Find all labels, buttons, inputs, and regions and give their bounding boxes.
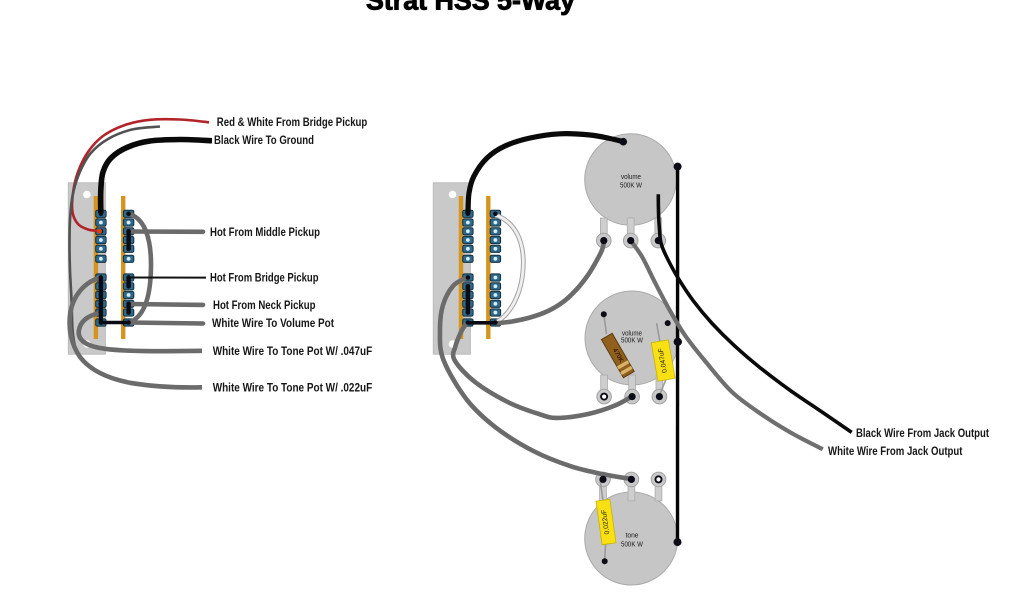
svg-text:Strat HSS 5-Way: Strat HSS 5-Way [366,0,575,16]
svg-text:Hot From Bridge Pickup: Hot From Bridge Pickup [210,271,319,284]
svg-text:Hot From Neck Pickup: Hot From Neck Pickup [213,299,316,312]
svg-text:White Wire To Tone Pot W/ .022: White Wire To Tone Pot W/ .022uF [213,382,373,395]
svg-text:Black Wire From Jack Output: Black Wire From Jack Output [856,427,989,440]
svg-text:500K W: 500K W [621,539,643,548]
svg-text:tone: tone [626,531,639,540]
svg-text:White Wire From Jack Output: White Wire From Jack Output [828,445,963,458]
svg-text:White Wire To Tone Pot W/ .047: White Wire To Tone Pot W/ .047uF [213,345,373,358]
svg-text:Red & White From Bridge Pickup: Red & White From Bridge Pickup [217,116,367,129]
svg-text:Hot From Middle Pickup: Hot From Middle Pickup [210,226,320,239]
svg-text:500K W: 500K W [621,336,643,345]
svg-text:500K W: 500K W [620,181,642,190]
svg-text:White Wire To Volume Pot: White Wire To Volume Pot [212,317,334,330]
svg-text:Black Wire To Ground: Black Wire To Ground [214,134,314,147]
